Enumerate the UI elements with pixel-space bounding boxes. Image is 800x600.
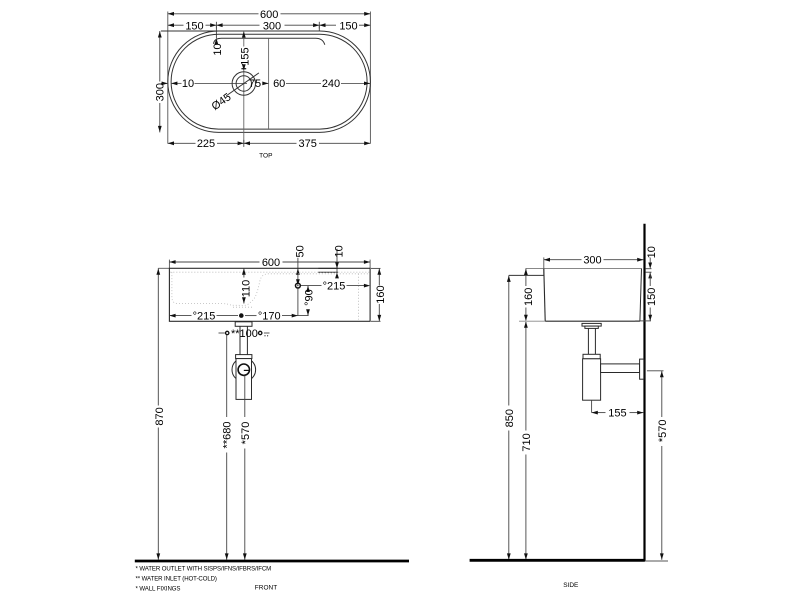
svg-text:* WALL FIXINGS: * WALL FIXINGS — [136, 585, 181, 592]
svg-text:870: 870 — [154, 407, 166, 425]
svg-text:TOP: TOP — [259, 153, 272, 160]
svg-text:°215: °215 — [323, 280, 346, 292]
svg-text:**100: **100 — [231, 328, 258, 340]
svg-text:10: 10 — [334, 245, 346, 257]
svg-text:600: 600 — [262, 257, 280, 269]
svg-text:*570: *570 — [657, 419, 669, 442]
svg-text:FRONT: FRONT — [255, 584, 277, 591]
svg-text:°90: °90 — [303, 289, 315, 306]
svg-text:75: 75 — [249, 78, 261, 90]
svg-text:10: 10 — [646, 246, 658, 258]
svg-text:150: 150 — [339, 20, 357, 32]
svg-text:240: 240 — [322, 78, 340, 90]
svg-text:300: 300 — [583, 255, 601, 267]
svg-text:110: 110 — [240, 280, 252, 298]
svg-text:** WATER INLET (HOT-COLD): ** WATER INLET (HOT-COLD) — [136, 575, 217, 582]
svg-text:155: 155 — [608, 407, 626, 419]
svg-text:300: 300 — [263, 20, 281, 32]
svg-text:150: 150 — [185, 20, 203, 32]
svg-text:°215: °215 — [193, 310, 216, 322]
svg-text:50: 50 — [294, 245, 306, 257]
svg-text:600: 600 — [260, 9, 278, 21]
svg-text:SIDE: SIDE — [563, 582, 579, 589]
svg-text:*570: *570 — [240, 422, 252, 445]
svg-text:60: 60 — [273, 78, 285, 90]
svg-text:375: 375 — [299, 138, 317, 150]
svg-text:**680: **680 — [222, 422, 234, 449]
svg-text:160: 160 — [375, 285, 387, 303]
svg-text:160: 160 — [523, 288, 535, 306]
svg-text:155: 155 — [239, 47, 251, 65]
svg-text:150: 150 — [646, 288, 658, 306]
svg-text:°170: °170 — [258, 310, 281, 322]
svg-text:10: 10 — [182, 78, 194, 90]
svg-text:300: 300 — [154, 83, 166, 101]
svg-text:10: 10 — [212, 43, 224, 55]
svg-text:850: 850 — [504, 409, 516, 427]
svg-text:225: 225 — [197, 138, 215, 150]
svg-text:710: 710 — [521, 433, 533, 451]
svg-text:* WATER OUTLET WITH SISPS/IFN: * WATER OUTLET WITH SISPS/IFNS/IFBRS/IFC… — [136, 566, 272, 573]
